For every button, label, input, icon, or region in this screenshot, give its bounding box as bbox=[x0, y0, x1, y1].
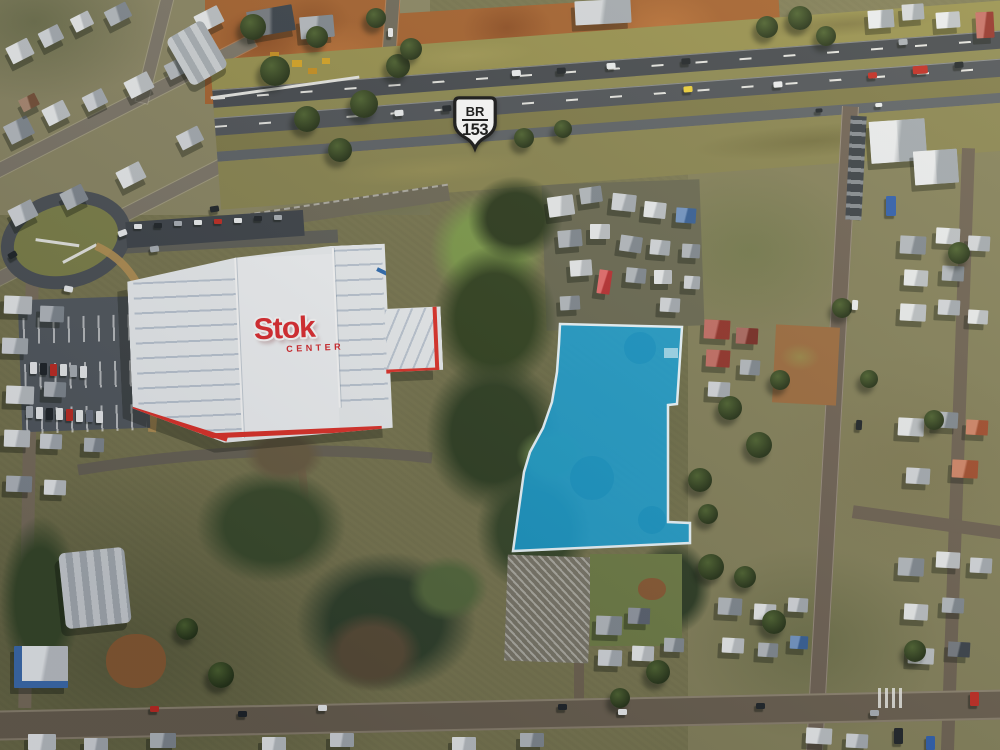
parcel-overlay-layer bbox=[0, 0, 1000, 750]
parcel-texture bbox=[664, 348, 678, 358]
route-shield: BR 153 bbox=[452, 96, 498, 154]
parcel-texture bbox=[624, 332, 656, 364]
parcel-texture bbox=[570, 456, 614, 500]
aerial-photo: Stok CENTER BR 153 bbox=[0, 0, 1000, 750]
parcel-texture bbox=[638, 506, 666, 534]
route-number: 153 bbox=[452, 122, 498, 139]
route-prefix: BR bbox=[452, 105, 498, 118]
